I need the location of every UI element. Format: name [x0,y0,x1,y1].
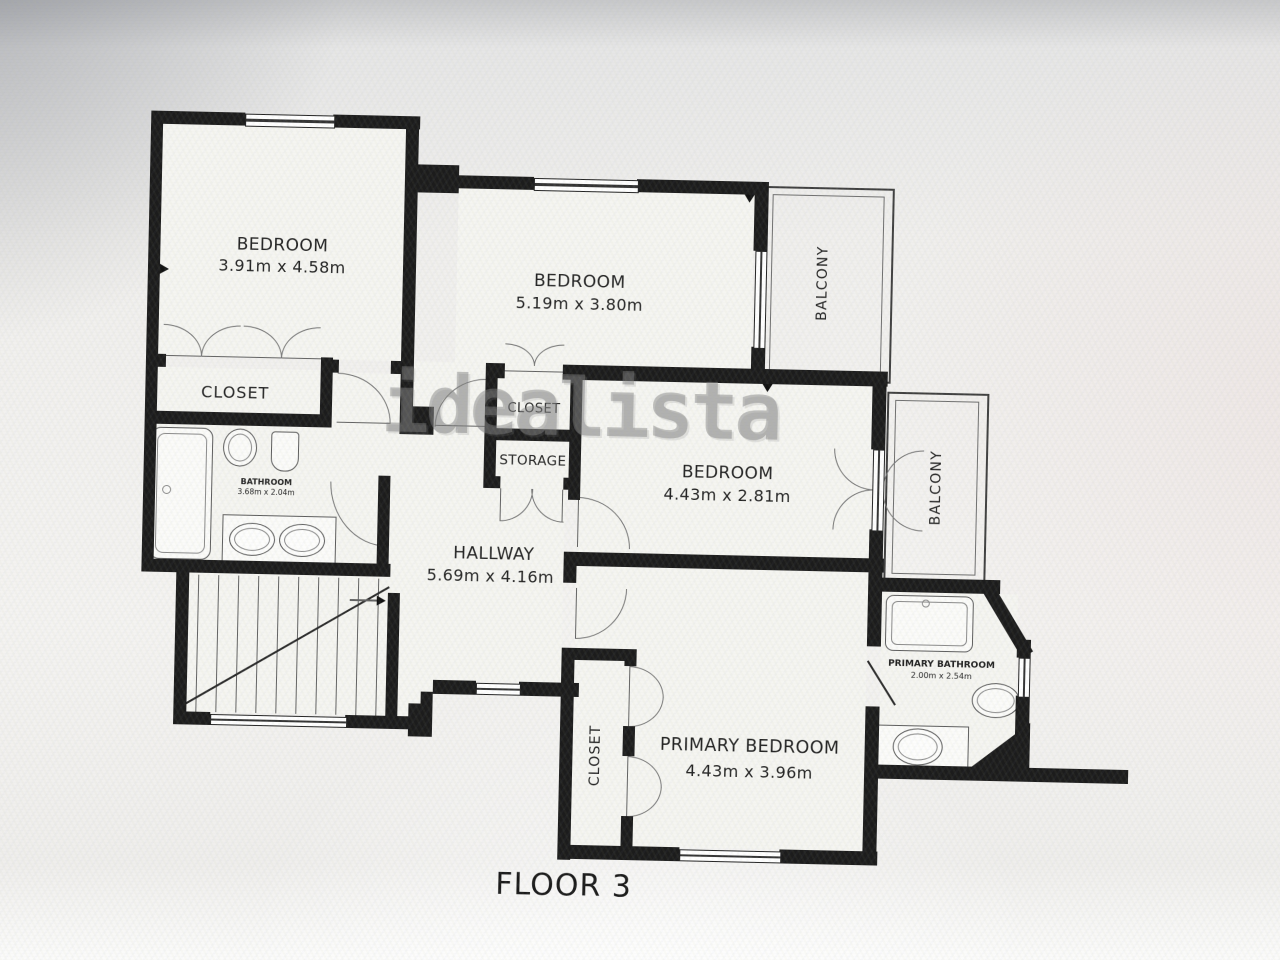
wall [624,661,636,666]
bathtub-inner [891,601,968,647]
stair-arrow-icon [377,596,386,606]
wall [753,184,768,251]
wall [622,726,635,756]
room-label-bedroom-middle-right: BEDROOM [682,462,774,484]
room-label-balcony-right: BALCONY [928,450,946,526]
wall [483,476,500,488]
window [534,178,639,193]
window [245,114,335,129]
wall [869,529,884,558]
window [210,714,347,728]
room-dims-hallway: 5.69m x 4.16m [426,565,554,587]
window [679,849,781,863]
room-label-balcony-top: BALCONY [814,245,832,321]
room-label-primary-bedroom: PRIMARY BEDROOM [660,735,840,759]
floor-title: FLOOR 3 [495,867,632,905]
room-label-bathroom: BATHROOM [240,477,292,487]
wall [1017,640,1031,658]
room-label-bedroom-top-middle: BEDROOM [534,271,626,293]
wall [862,706,879,865]
room-dims-bathroom: 3.68m x 2.04m [237,487,294,497]
window [1018,658,1031,698]
watermark-idealista: idealista [380,357,779,459]
wall [333,360,339,373]
room-label-closet-bedroom1: CLOSET [201,382,270,402]
wall [146,353,166,366]
room-label-bedroom-top-left: BEDROOM [237,234,329,256]
room-dims-primary-bathroom: 2.00m x 2.54m [911,671,972,681]
wall [867,572,883,646]
floor-plan: BEDROOM 3.91m x 4.58m BEDROOM 5.19m x 3.… [91,70,1059,931]
wall [151,111,245,126]
wall [568,490,580,500]
balcony-door-leaf [871,449,885,531]
room-dims-bedroom-top-middle: 5.19m x 3.80m [515,293,643,315]
room-dims-bedroom-middle-right: 4.43m x 2.81m [663,484,791,506]
wall [420,692,432,706]
wall [173,711,210,725]
floor-plan-photo: { "photo": { "watermark": "idealista", "… [0,0,1280,960]
wall [871,384,886,449]
wall [570,845,679,861]
bidet-fixture [271,431,300,472]
wall-tick-icon [745,195,755,203]
wall-tick-icon [160,264,169,274]
window [476,683,521,696]
wall [575,648,637,661]
room-label-hallway: HALLWAY [453,543,535,565]
room-label-storage: STORAGE [499,452,566,469]
bathtub-inner [155,433,208,554]
room-dims-primary-bedroom: 4.43m x 3.96m [685,761,813,783]
wall [376,476,390,574]
wall [563,566,576,583]
room-label-closet-primary: CLOSET [587,724,604,786]
balcony-slider-window [753,251,767,349]
room-dims-bedroom-top-left: 3.91m x 4.58m [218,256,346,278]
wall [452,175,534,190]
wall [433,680,476,695]
wall [563,478,580,490]
wall [408,703,433,737]
